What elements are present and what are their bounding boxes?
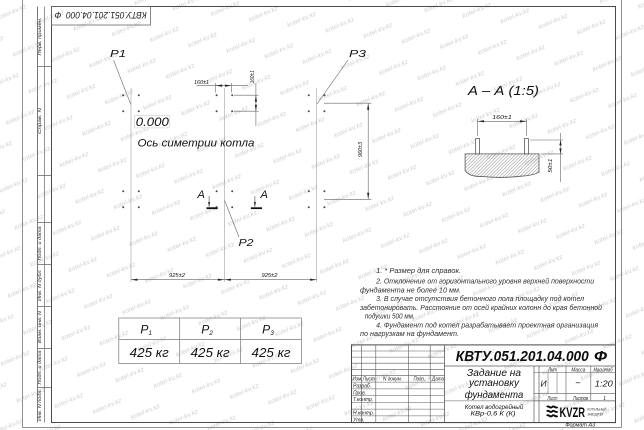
svg-text:960±3: 960±3 (358, 141, 364, 157)
svg-text:–: – (575, 378, 581, 387)
svg-text:925±2: 925±2 (169, 273, 186, 279)
svg-text:Лист: Лист (547, 396, 558, 402)
svg-text:1. * Размер для справок.: 1. * Размер для справок. (376, 266, 461, 275)
svg-text:Котел водогрейный: Котел водогрейный (465, 403, 524, 411)
svg-text:Т.контр.: Т.контр. (353, 397, 373, 403)
svg-text:фундамента не более 10 мм.: фундамента не более 10 мм. (360, 285, 461, 294)
svg-text:2. Отклонение от горизонтально: 2. Отклонение от горизонтального уровня … (375, 276, 594, 285)
svg-text:Изм.Лист: Изм.Лист (352, 376, 375, 382)
svg-text:425 кг: 425 кг (191, 345, 231, 360)
svg-text:Лит: Лит (547, 367, 557, 373)
svg-text:1:20: 1:20 (595, 378, 613, 388)
svg-text:Взам. инв. N: Взам. инв. N (37, 310, 43, 343)
svg-text:Подп. и дата: Подп. и дата (37, 226, 43, 260)
svg-text:Листов: Листов (572, 396, 588, 402)
svg-text:1: 1 (603, 396, 606, 402)
svg-text:425 кг: 425 кг (252, 345, 292, 360)
svg-text:фундамента: фундамента (465, 389, 524, 401)
svg-text:Инв. N подл.: Инв. N подл. (37, 389, 43, 421)
svg-text:0.000: 0.000 (136, 115, 169, 129)
svg-text:Масса: Масса (571, 367, 585, 373)
svg-text:160±1: 160±1 (250, 70, 256, 83)
svg-text:КВТУ.051.201.04.000: КВТУ.051.201.04.000 (456, 349, 589, 365)
svg-text:ЗАВОД РЭП: ЗАВОД РЭП (588, 411, 604, 416)
svg-text:подушки 500 мм.: подушки 500 мм. (365, 312, 415, 321)
svg-text:N докум.: N докум. (383, 376, 402, 382)
svg-text:Ф: Ф (594, 349, 608, 365)
svg-text:Перв. примен.: Перв. примен. (37, 18, 43, 56)
svg-text:установку: установку (468, 377, 520, 389)
svg-text:3. В случае отсутствия бетонно: 3. В случае отсутствия бетонного пола пл… (376, 294, 584, 303)
svg-text:Р3: Р3 (349, 48, 366, 60)
svg-text:КВТУ.051.201.04.000 Ф: КВТУ.051.201.04.000 Ф (55, 10, 147, 20)
svg-text:Масштаб: Масштаб (594, 367, 613, 373)
svg-text:КВр-0,6 К (К): КВр-0,6 К (К) (471, 411, 516, 418)
svg-text:И: И (540, 378, 547, 388)
svg-text:Р1: Р1 (110, 48, 126, 60)
svg-text:по нагрузкам на фундамент.: по нагрузкам на фундамент. (360, 329, 459, 338)
svg-text:Утв.: Утв. (353, 417, 364, 423)
svg-text:Ось симетрии котла: Ось симетрии котла (138, 138, 255, 150)
svg-text:Подп.: Подп. (414, 376, 426, 382)
svg-text:Н.контр.: Н.контр. (353, 411, 374, 417)
svg-text:Р2: Р2 (239, 237, 254, 249)
svg-text:А: А (260, 189, 268, 201)
svg-text:925±2: 925±2 (262, 273, 279, 279)
svg-text:160±1: 160±1 (194, 80, 209, 86)
svg-text:425 кг: 425 кг (130, 345, 170, 360)
svg-text:Формат А3: Формат А3 (565, 423, 596, 429)
svg-text:Разраб.: Разраб. (353, 384, 371, 390)
svg-text:А – А (1:5): А – А (1:5) (467, 84, 539, 98)
svg-text:KVZR: KVZR (560, 405, 586, 420)
svg-text:160±1: 160±1 (492, 115, 512, 121)
svg-text:50±1: 50±1 (548, 159, 554, 173)
svg-text:Справ. N: Справ. N (37, 107, 43, 134)
svg-text:Инв. N дубл.: Инв. N дубл. (37, 269, 43, 301)
svg-text:Пров.: Пров. (353, 390, 366, 396)
svg-text:А: А (197, 189, 205, 201)
svg-text:Дата: Дата (431, 376, 444, 382)
svg-text:Подп. и дата: Подп. и дата (37, 350, 43, 384)
